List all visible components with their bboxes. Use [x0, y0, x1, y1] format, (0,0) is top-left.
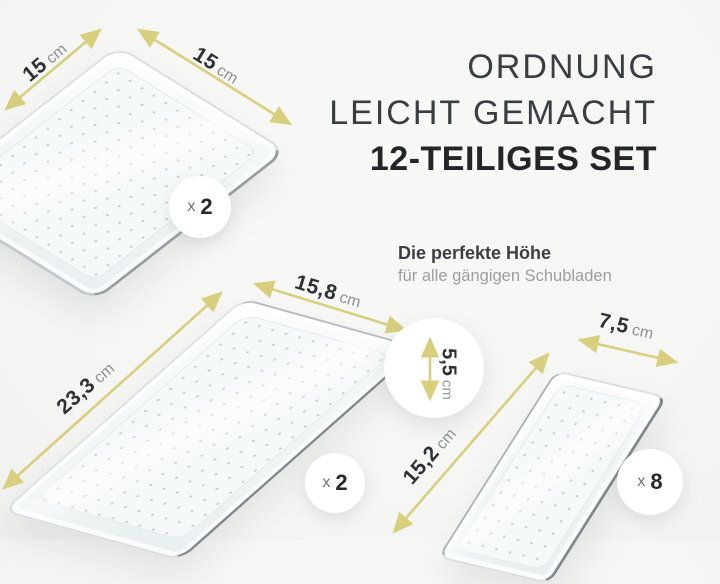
headline-line-1: ORDNUNG	[329, 44, 657, 90]
quantity-badge-square-tray: x2	[169, 176, 231, 238]
sub-headline: Die perfekte Höhe für alle gängigen Schu…	[398, 243, 612, 287]
dim-unit: cm	[630, 322, 655, 343]
dim-value: 5,5	[438, 348, 460, 376]
dim-label-5-5cm: 5,5cm	[437, 348, 460, 400]
arrow-7-5cm	[580, 340, 676, 362]
arrow-23-3cm	[4, 293, 221, 488]
sub-headline-subtitle: für alle gängigen Schubladen	[398, 266, 612, 287]
multiplier-sign: x	[187, 198, 195, 216]
height-measure-circle: 5,5cm	[384, 318, 484, 418]
quantity-badge-narrow-tray: x8	[617, 449, 683, 515]
multiplier-sign: x	[637, 473, 645, 491]
quantity-count: 8	[650, 469, 662, 495]
quantity-count: 2	[200, 194, 212, 220]
headline-line-2: LEICHT GEMACHT	[329, 90, 657, 136]
sub-headline-title: Die perfekte Höhe	[398, 243, 612, 264]
dim-unit: cm	[439, 380, 456, 400]
product-infographic: 15cm 15cm 15,8cm 23,3cm 7,5cm 15,2cm 5,5…	[0, 0, 720, 540]
quantity-badge-large-tray: x2	[305, 453, 365, 513]
quantity-count: 2	[335, 470, 347, 496]
headline: ORDNUNG LEICHT GEMACHT 12-TEILIGES SET	[329, 44, 657, 182]
headline-line-3: 12-TEILIGES SET	[329, 136, 657, 182]
multiplier-sign: x	[322, 474, 330, 492]
